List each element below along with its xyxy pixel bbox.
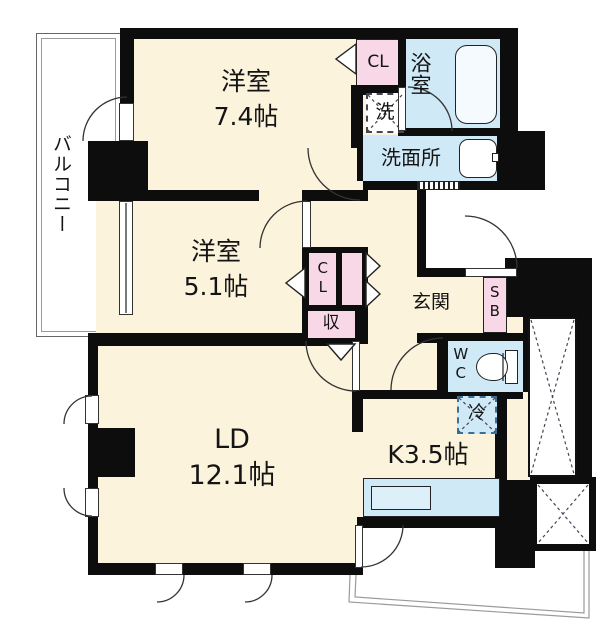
kitchen-label: K3.5帖 <box>387 442 468 468</box>
bath-label: 浴室 <box>409 52 431 96</box>
pillar-b <box>88 428 135 477</box>
living-name-label: LD <box>214 426 250 454</box>
wall-ld-bottom-a <box>88 563 155 575</box>
wall-kitchen-bottom <box>357 517 500 528</box>
bedroom1-name-label: 洋室 <box>221 69 271 95</box>
wall-left-upper <box>120 28 134 103</box>
fridge-label: 冷 <box>468 405 486 424</box>
shoebox-label: SB <box>486 283 502 321</box>
floorplan: バルコニー 洋室 7.4帖 洋室 5.1帖 LD 12.1帖 K3.5帖 浴室 … <box>0 0 607 640</box>
block-bottom-right <box>495 480 535 568</box>
wall-right-jut <box>497 131 545 190</box>
wall-right-upper <box>500 28 518 135</box>
wall-washroom-left <box>357 135 363 181</box>
ld-window-bottom-2 <box>243 563 271 575</box>
wall-bedroom-divider <box>133 190 259 201</box>
toilet-label: WC <box>452 345 468 383</box>
toilet-bowl-icon <box>476 353 508 381</box>
sink-tap-icon <box>492 153 499 162</box>
ld-window-bottom-1 <box>155 563 183 575</box>
bathtub-icon <box>455 45 497 124</box>
bedroom2-size-label: 5.1帖 <box>184 274 249 300</box>
wall-right-lower <box>577 317 592 480</box>
pipe-shaft-small-inner <box>537 484 589 544</box>
closet-top-label: CL <box>367 54 388 72</box>
wall-hall-right <box>417 190 426 268</box>
washroom-label: 洗面所 <box>381 148 441 169</box>
closet-mid-cell-b <box>342 253 362 305</box>
kitchen-sink-icon <box>371 486 431 510</box>
wall-bath-left <box>398 39 406 87</box>
porch-door-leaf <box>355 525 363 568</box>
bedroom2-door-leaf <box>302 201 311 248</box>
living-size-label: 12.1帖 <box>188 462 275 490</box>
entrance-door-gap <box>465 268 517 277</box>
wall-bedroom-divider-b <box>302 190 368 201</box>
wall-bath-bottom <box>398 128 500 136</box>
entrance-label: 玄関 <box>412 293 450 313</box>
wall-washroom-bottom-a <box>363 181 417 190</box>
wall-ld-left-c <box>88 517 98 568</box>
bedroom2-window <box>119 201 133 315</box>
wall-ld-kitchen-stub <box>352 390 363 432</box>
bedroom1-size-label: 7.4帖 <box>214 104 279 130</box>
ld-door-leaf <box>352 341 360 391</box>
entry-alcove <box>426 188 577 268</box>
bath-door-gap <box>398 87 406 131</box>
window-arc-ld-bottom-2 <box>245 575 272 602</box>
balcony-label: バルコニー <box>50 134 70 234</box>
wall-top <box>120 28 518 39</box>
wall-ld-bottom-b <box>183 563 243 575</box>
wall-entrance-top <box>417 268 465 277</box>
ld-window-left-2 <box>85 488 99 517</box>
block-top-right <box>505 258 592 317</box>
pipe-shaft-tall <box>528 317 577 477</box>
rear-porch <box>363 528 497 568</box>
wall-ld-bottom-c <box>271 563 363 575</box>
washroom-sliding-door <box>417 181 460 190</box>
ld-window-left-1 <box>85 395 99 424</box>
window-arc-ld-bottom-1 <box>157 575 184 602</box>
wall-washroom-bottom-b <box>460 181 497 190</box>
wall-ld-left-a <box>88 338 98 395</box>
laundry-label: 洗 <box>375 103 394 123</box>
balcony-door-gap <box>119 103 134 141</box>
closet-mid-label: CL <box>314 259 330 297</box>
wall-wc-left <box>437 341 448 392</box>
storage-label: 収 <box>323 315 340 333</box>
bedroom2-name-label: 洋室 <box>191 239 241 265</box>
